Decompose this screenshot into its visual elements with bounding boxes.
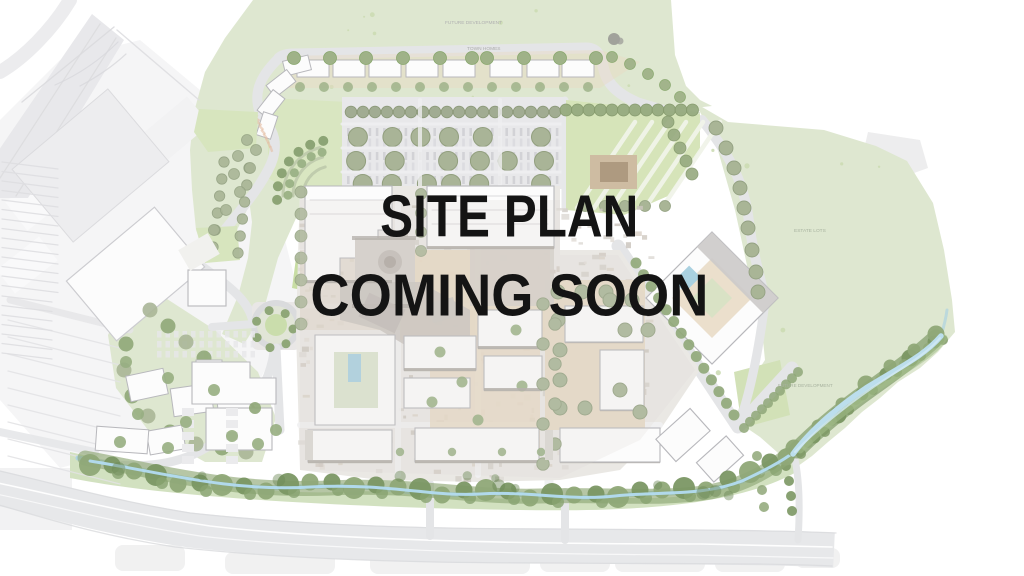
svg-text:COMING SOON: COMING SOON [310, 264, 708, 330]
svg-text:SITE PLAN: SITE PLAN [380, 183, 638, 249]
